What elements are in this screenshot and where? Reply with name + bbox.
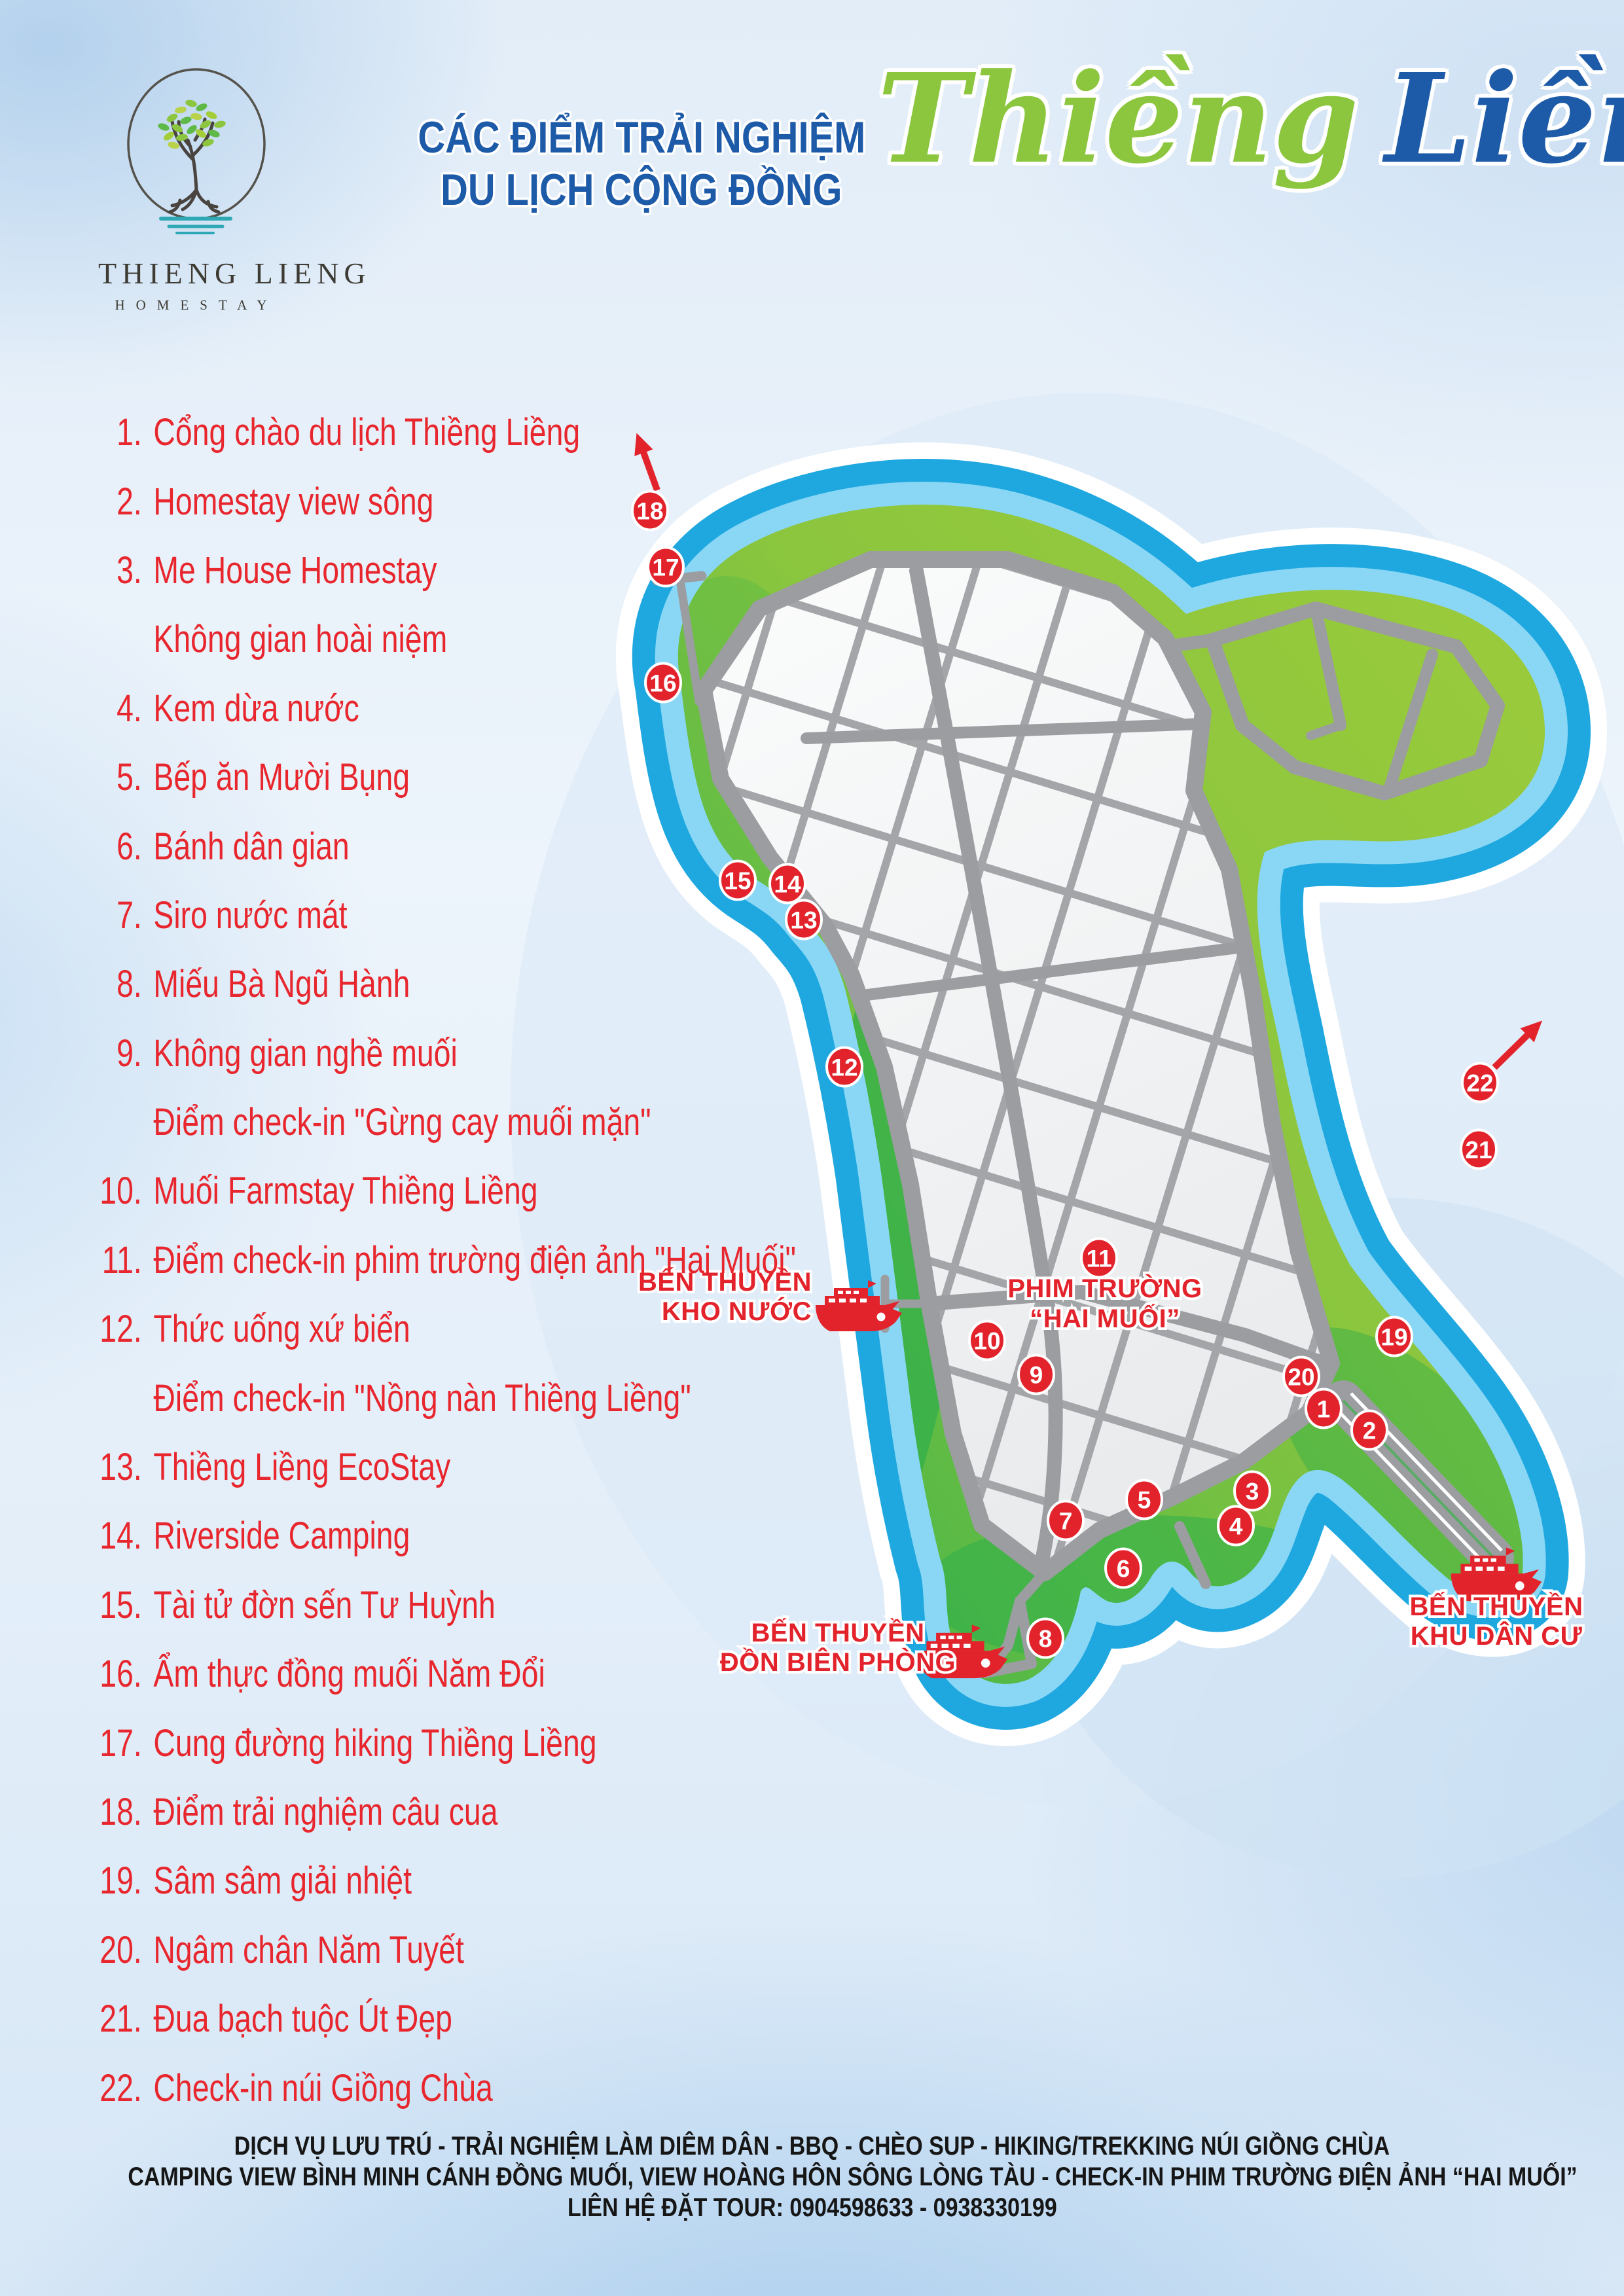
- poi-item-number: 20.: [92, 1928, 142, 1972]
- poster-title-line1: CÁC ĐIỂM TRẢI NGHIỆM: [418, 111, 865, 164]
- poi-list-item: 8.Miếu Bà Ngũ Hành: [92, 950, 825, 1018]
- map-marker-11: 11: [1081, 1239, 1117, 1278]
- footer-line3: LIÊN HỆ ĐẶT TOUR: 0904598633 - 093833019…: [568, 2193, 1057, 2223]
- poi-list-item: 22.Check-in núi Giồng Chùa: [92, 2053, 825, 2122]
- brand-word-thieng: Thiềng: [877, 58, 1359, 181]
- poster-root: THIENG LIENG HOMESTAY CÁC ĐIỂM TRẢI NGHI…: [0, 0, 1624, 2296]
- map-marker-2: 2: [1352, 1411, 1387, 1450]
- poi-item-label: Điểm check-in "Nồng nàn Thiềng Liềng": [153, 1376, 691, 1420]
- svg-text:11: 11: [1086, 1246, 1111, 1272]
- poi-item-number: 19.: [92, 1859, 142, 1903]
- poi-item-label: Siro nước mát: [153, 893, 347, 937]
- poi-item-number: 10.: [92, 1169, 142, 1213]
- poi-list-item: 16.Ẩm thực đồng muối Năm Đổi: [92, 1640, 825, 1708]
- poster-title: CÁC ĐIỂM TRẢI NGHIỆM DU LỊCH CỘNG ĐỒNG: [376, 111, 907, 216]
- map-marker-5: 5: [1127, 1480, 1162, 1519]
- svg-text:9: 9: [1030, 1362, 1043, 1389]
- poi-item-number: 16.: [92, 1652, 142, 1696]
- svg-text:7: 7: [1059, 1508, 1073, 1535]
- map-marker-4: 4: [1218, 1507, 1254, 1545]
- poi-item-label: Cung đường hiking Thiềng Liềng: [153, 1721, 596, 1765]
- map-marker-10: 10: [969, 1321, 1005, 1360]
- poi-item-label: Đua bạch tuộc Út Đẹp: [153, 1997, 452, 2041]
- map-marker-6: 6: [1106, 1549, 1141, 1588]
- poi-list-item: 2.Homestay view sông: [92, 467, 825, 535]
- poi-item-number: 13.: [92, 1445, 142, 1489]
- poi-list-item: 11.Điểm check-in phim trường điện ảnh "H…: [92, 1226, 825, 1295]
- poi-item-label: Cổng chào du lịch Thiềng Liềng: [153, 410, 580, 454]
- map-label-khu-dan-cu: BẾN THUYỀNKHU DÂN CƯ: [1409, 1591, 1583, 1651]
- poi-item-number: 3.: [92, 548, 142, 592]
- poi-item-number: 1.: [92, 410, 142, 454]
- map-marker-19: 19: [1377, 1318, 1412, 1356]
- poi-item-label: Muối Farmstay Thiềng Liềng: [153, 1169, 537, 1213]
- poi-list-item: 7.Siro nước mát: [92, 881, 825, 950]
- poi-list-item: Điểm check-in "Nồng nàn Thiềng Liềng": [92, 1363, 825, 1432]
- poi-item-label: Ẩm thực đồng muối Năm Đổi: [153, 1652, 545, 1696]
- poi-list-item: 19.Sâm sâm giải nhiệt: [92, 1846, 825, 1915]
- logo-name: THIENG LIENG: [98, 256, 295, 291]
- svg-text:2: 2: [1363, 1418, 1377, 1444]
- footer-line1: DỊCH VỤ LƯU TRÚ - TRẢI NGHIỆM LÀM DIÊM D…: [234, 2131, 1390, 2162]
- svg-text:5: 5: [1138, 1487, 1151, 1514]
- map-marker-20: 20: [1284, 1357, 1319, 1396]
- poi-item-label: Thiềng Liềng EcoStay: [153, 1445, 450, 1489]
- svg-text:12: 12: [831, 1054, 857, 1081]
- poi-list-item: 1.Cổng chào du lịch Thiềng Liềng: [92, 398, 825, 467]
- poi-list-item: Điểm check-in "Gừng cay muối mặn": [92, 1088, 825, 1157]
- svg-text:6: 6: [1117, 1556, 1130, 1583]
- poi-item-label: Miếu Bà Ngũ Hành: [153, 962, 410, 1006]
- poi-list-item: 13.Thiềng Liềng EcoStay: [92, 1433, 825, 1501]
- poi-item-label: Không gian hoài niệm: [153, 617, 447, 661]
- poi-item-number: 15.: [92, 1583, 142, 1627]
- poster-title-line2: DU LỊCH CỘNG ĐỒNG: [441, 164, 842, 216]
- poi-item-label: Sâm sâm giải nhiệt: [153, 1859, 412, 1903]
- poi-list: 1.Cổng chào du lịch Thiềng Liềng2.Homest…: [92, 398, 825, 2123]
- poi-list-item: 15.Tài tử đờn sến Tư Huỳnh: [92, 1571, 825, 1640]
- poi-item-label: Thức uống xứ biển: [153, 1307, 410, 1351]
- thieng-lieng-logo: THIENG LIENG HOMESTAY: [98, 60, 295, 314]
- svg-text:4: 4: [1229, 1513, 1243, 1540]
- poi-item-label: Kem dừa nước: [153, 687, 359, 730]
- poi-item-label: Me House Homestay: [153, 548, 437, 592]
- map-marker-12: 12: [827, 1048, 862, 1086]
- poi-item-number: 12.: [92, 1307, 142, 1351]
- svg-text:19: 19: [1380, 1324, 1407, 1351]
- map-marker-8: 8: [1028, 1619, 1063, 1658]
- poi-item-label: Không gian nghề muối: [153, 1031, 457, 1075]
- poi-item-number: 14.: [92, 1514, 142, 1558]
- poi-list-item: 18.Điểm trải nghiệm câu cua: [92, 1778, 825, 1846]
- poi-item-number: 22.: [92, 2066, 142, 2110]
- poi-item-label: Ngâm chân Năm Tuyết: [153, 1928, 464, 1972]
- poi-item-number: 6.: [92, 825, 142, 869]
- poi-item-number: 2.: [92, 480, 142, 524]
- map-marker-21: 21: [1461, 1130, 1496, 1169]
- svg-text:10: 10: [973, 1328, 1000, 1355]
- poi-list-item: 10.Muối Farmstay Thiềng Liềng: [92, 1157, 825, 1225]
- poi-item-label: Homestay view sông: [153, 480, 433, 524]
- poi-list-item: 9.Không gian nghề muối: [92, 1019, 825, 1088]
- poi-item-number: 5.: [92, 755, 142, 799]
- poi-item-number: 4.: [92, 687, 142, 730]
- poi-list-item: 4.Kem dừa nước: [92, 674, 825, 743]
- poi-list-item: 12.Thức uống xứ biển: [92, 1295, 825, 1363]
- poi-item-number: 18.: [92, 1790, 142, 1834]
- poi-item-label: Bánh dân gian: [153, 825, 349, 869]
- poi-list-item: 21.Đua bạch tuộc Út Đẹp: [92, 1984, 825, 2053]
- logo-tree-leaves: [157, 99, 226, 150]
- poi-item-number: 8.: [92, 962, 142, 1006]
- svg-text:8: 8: [1039, 1626, 1053, 1653]
- logo-water-ripples: [161, 219, 230, 233]
- svg-text:21: 21: [1465, 1137, 1492, 1164]
- svg-text:1: 1: [1317, 1396, 1331, 1423]
- map-marker-9: 9: [1019, 1355, 1054, 1394]
- svg-text:22: 22: [1466, 1070, 1493, 1097]
- poi-item-label: Điểm check-in phim trường điện ảnh "Hai …: [153, 1238, 796, 1282]
- poi-item-number: 21.: [92, 1997, 142, 2041]
- poi-item-label: Tài tử đờn sến Tư Huỳnh: [153, 1583, 495, 1627]
- brand-word-lieng: Liềng: [1385, 58, 1624, 181]
- poi-item-label: Bếp ăn Mười Bụng: [153, 755, 410, 799]
- poi-item-label: Riverside Camping: [153, 1514, 410, 1558]
- poi-list-item: 3.Me House Homestay: [92, 536, 825, 605]
- mangrove-tree-logo-icon: [98, 60, 295, 250]
- poi-list-item: 5.Bếp ăn Mười Bụng: [92, 743, 825, 812]
- poi-list-item: 20.Ngâm chân Năm Tuyết: [92, 1916, 825, 1984]
- poi-item-number: 17.: [92, 1721, 142, 1765]
- map-marker-22: 22: [1462, 1064, 1498, 1102]
- footer: DỊCH VỤ LƯU TRÚ - TRẢI NGHIỆM LÀM DIÊM D…: [0, 2131, 1624, 2223]
- footer-line2: CAMPING VIEW BÌNH MINH CÁNH ĐỒNG MUỐI, V…: [128, 2162, 1577, 2193]
- brand-wordmark: Thiềng Liềng: [877, 58, 1624, 181]
- poi-list-item: 17.Cung đường hiking Thiềng Liềng: [92, 1708, 825, 1777]
- poi-item-number: 9.: [92, 1031, 142, 1075]
- map-marker-3: 3: [1235, 1472, 1270, 1511]
- svg-text:3: 3: [1246, 1479, 1259, 1505]
- poi-item-number: 7.: [92, 893, 142, 937]
- svg-text:20: 20: [1288, 1364, 1314, 1391]
- poi-list-item: 14.Riverside Camping: [92, 1501, 825, 1570]
- map-marker-1: 1: [1306, 1390, 1341, 1428]
- map-marker-7: 7: [1048, 1501, 1083, 1540]
- poi-list-item: Không gian hoài niệm: [92, 605, 825, 673]
- poi-item-number: 11.: [92, 1238, 142, 1282]
- logo-subtitle: HOMESTAY: [98, 297, 295, 314]
- poi-item-label: Điểm trải nghiệm câu cua: [153, 1790, 497, 1834]
- poi-item-label: Check-in núi Giồng Chùa: [153, 2066, 492, 2110]
- poi-list-item: 6.Bánh dân gian: [92, 812, 825, 880]
- poi-item-label: Điểm check-in "Gừng cay muối mặn": [153, 1100, 651, 1144]
